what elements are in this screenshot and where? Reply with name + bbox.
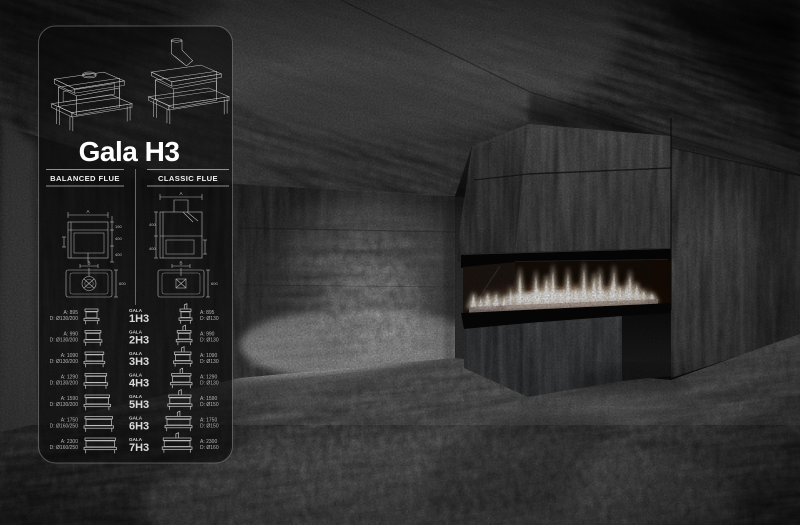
svg-text:D: Ø130: D: Ø130: [200, 381, 219, 387]
svg-text:190: 190: [115, 224, 122, 229]
svg-text:D: Ø160/250: D: Ø160/250: [50, 424, 79, 430]
svg-text:D: Ø130/200: D: Ø130/200: [50, 316, 79, 322]
svg-text:400: 400: [115, 236, 122, 241]
svg-text:D: Ø160: D: Ø160: [200, 445, 219, 451]
svg-text:A: A: [179, 191, 182, 196]
svg-text:D: Ø130: D: Ø130: [200, 316, 219, 322]
svg-text:6H3: 6H3: [129, 421, 149, 433]
svg-text:2H3: 2H3: [129, 335, 149, 347]
svg-text:D: Ø130/200: D: Ø130/200: [50, 402, 79, 408]
svg-text:CLASSIC FLUE: CLASSIC FLUE: [158, 174, 218, 183]
svg-text:A: A: [86, 209, 89, 214]
svg-text:1H3: 1H3: [129, 313, 149, 325]
svg-text:600: 600: [119, 281, 126, 286]
svg-text:BALANCED FLUE: BALANCED FLUE: [50, 174, 120, 183]
svg-text:D: Ø130: D: Ø130: [200, 359, 219, 365]
svg-text:D: Ø130: D: Ø130: [200, 338, 219, 344]
svg-text:400: 400: [149, 246, 156, 251]
svg-text:D: Ø130/200: D: Ø130/200: [50, 381, 79, 387]
svg-text:Gala H3: Gala H3: [79, 136, 180, 167]
svg-text:3H3: 3H3: [129, 356, 149, 368]
svg-text:400: 400: [149, 222, 156, 227]
svg-text:7H3: 7H3: [129, 442, 149, 454]
svg-text:4H3: 4H3: [129, 378, 149, 390]
svg-text:600: 600: [211, 281, 218, 286]
svg-text:D: Ø150: D: Ø150: [200, 424, 219, 430]
svg-text:D: Ø150: D: Ø150: [200, 402, 219, 408]
svg-text:D: Ø130/200: D: Ø130/200: [50, 338, 79, 344]
svg-text:D: Ø160/250: D: Ø160/250: [50, 445, 79, 451]
svg-text:400: 400: [115, 252, 122, 257]
svg-text:5H3: 5H3: [129, 399, 149, 411]
svg-text:B: B: [179, 261, 182, 266]
svg-text:D: Ø130/200: D: Ø130/200: [50, 359, 79, 365]
svg-text:B: B: [87, 261, 90, 266]
